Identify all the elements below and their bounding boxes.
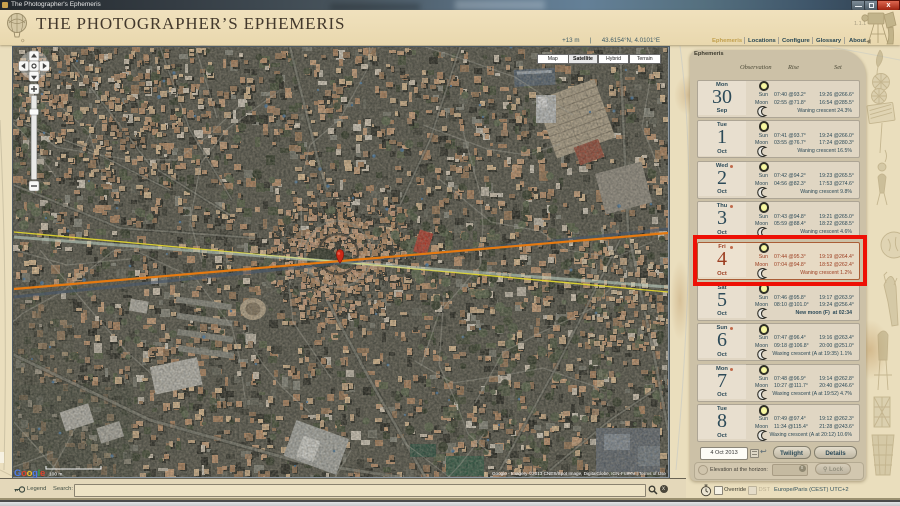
svg-text:☼: ☼	[20, 38, 26, 44]
